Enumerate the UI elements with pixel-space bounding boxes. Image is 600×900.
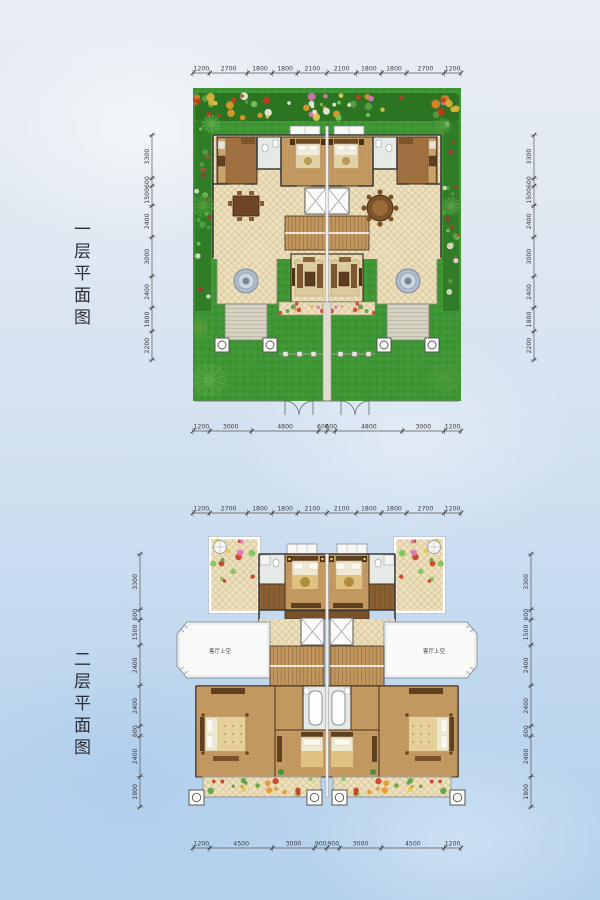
svg-text:3000: 3000	[286, 840, 302, 847]
svg-text:2400: 2400	[132, 698, 139, 714]
bedroom	[281, 137, 327, 186]
svg-text:2100: 2100	[334, 505, 350, 512]
tree	[193, 363, 226, 397]
dim-floor1-left: 3300600150024003000240018002200	[144, 133, 155, 362]
bay-balcony	[290, 126, 320, 135]
svg-text:1500: 1500	[526, 188, 533, 204]
staircase	[285, 216, 327, 250]
svg-text:1200: 1200	[445, 505, 461, 512]
svg-text:2100: 2100	[304, 65, 320, 72]
dim-floor2-left: 330060015002400240060024001800	[132, 552, 143, 809]
svg-text:3300: 3300	[523, 574, 530, 590]
svg-text:2700: 2700	[418, 65, 434, 72]
svg-text:600: 600	[526, 176, 533, 188]
svg-text:2700: 2700	[221, 65, 237, 72]
bedroom-upper	[285, 554, 327, 610]
svg-text:2400: 2400	[144, 213, 151, 229]
porch	[217, 258, 277, 304]
svg-text:1200: 1200	[194, 65, 210, 72]
svg-text:4800: 4800	[361, 423, 377, 430]
svg-text:3000: 3000	[144, 249, 151, 265]
center-path	[323, 302, 331, 401]
svg-text:4500: 4500	[233, 840, 249, 847]
column-base	[263, 338, 277, 352]
walkin-hall	[275, 686, 303, 730]
bay-window	[287, 544, 317, 554]
svg-text:1200: 1200	[445, 423, 461, 430]
party-wall	[326, 126, 329, 302]
svg-text:1200: 1200	[194, 505, 210, 512]
bathroom	[257, 137, 281, 169]
svg-text:1200: 1200	[194, 840, 210, 847]
svg-text:1500: 1500	[132, 624, 139, 640]
svg-text:2400: 2400	[144, 284, 151, 300]
svg-text:1200: 1200	[445, 840, 461, 847]
dim-floor2-top: 1200270018001800210021001800180027001200	[191, 505, 463, 516]
svg-text:1200: 1200	[194, 423, 210, 430]
svg-text:2400: 2400	[526, 213, 533, 229]
bedroom-lower	[275, 730, 327, 777]
svg-text:600: 600	[144, 176, 151, 188]
dim-floor2-right: 330060015002400240060024001800	[523, 552, 534, 809]
bathroom-lower	[303, 686, 327, 730]
balcony	[189, 777, 321, 797]
svg-text:2100: 2100	[304, 505, 320, 512]
dim-floor1-bottom: 120030004800600600480030001200	[191, 423, 463, 434]
floor2-title: 二层平面图	[68, 650, 93, 760]
svg-text:3000: 3000	[415, 423, 431, 430]
floor2-plan: 客厅上空 客厅上空	[163, 530, 491, 822]
entry-steps	[225, 304, 267, 340]
garden-strip-right	[442, 121, 460, 311]
tree	[430, 363, 460, 393]
svg-text:2100: 2100	[334, 65, 350, 72]
floorplan-sheet: { "page": { "width": 600, "height": 900,…	[0, 0, 600, 900]
svg-text:600: 600	[132, 725, 139, 737]
party-wall	[326, 554, 329, 797]
svg-text:2700: 2700	[418, 505, 434, 512]
tree	[435, 118, 451, 134]
svg-text:3000: 3000	[526, 249, 533, 265]
svg-text:1800: 1800	[361, 65, 377, 72]
floor1-title: 一层平面图	[68, 220, 93, 330]
column-base	[215, 338, 229, 352]
svg-text:900: 900	[315, 840, 327, 847]
svg-text:600: 600	[523, 609, 530, 621]
svg-text:2400: 2400	[526, 284, 533, 300]
svg-text:2400: 2400	[523, 657, 530, 673]
svg-text:2400: 2400	[523, 698, 530, 714]
svg-text:600: 600	[317, 423, 329, 430]
column-base	[307, 790, 322, 805]
svg-text:1800: 1800	[252, 505, 268, 512]
master-bedroom	[196, 686, 275, 777]
tree	[202, 115, 220, 133]
svg-text:1500: 1500	[144, 188, 151, 204]
svg-text:1500: 1500	[523, 624, 530, 640]
svg-text:2400: 2400	[523, 748, 530, 764]
svg-text:3300: 3300	[526, 149, 533, 165]
floor1-plan	[193, 88, 461, 418]
svg-text:1800: 1800	[361, 505, 377, 512]
staircase	[270, 646, 324, 686]
svg-text:900: 900	[327, 840, 339, 847]
svg-text:2400: 2400	[132, 657, 139, 673]
dim-floor2-bottom: 120045003000900900300045001200	[191, 840, 463, 851]
roof-terrace	[209, 537, 261, 614]
svg-text:1800: 1800	[132, 784, 139, 800]
svg-text:600: 600	[325, 423, 337, 430]
svg-text:3300: 3300	[132, 574, 139, 590]
svg-text:1800: 1800	[144, 312, 151, 328]
void-label-right: 客厅上空	[423, 647, 446, 655]
svg-text:3300: 3300	[144, 149, 151, 165]
svg-text:1800: 1800	[386, 505, 402, 512]
svg-text:3000: 3000	[223, 423, 239, 430]
void-label-left: 客厅上空	[209, 647, 232, 655]
svg-text:2200: 2200	[526, 338, 533, 354]
svg-text:4800: 4800	[277, 423, 293, 430]
column-base	[189, 790, 204, 805]
svg-text:600: 600	[523, 725, 530, 737]
dim-floor1-right: 3300600150024003000240018002200	[526, 133, 537, 362]
svg-text:1200: 1200	[445, 65, 461, 72]
svg-text:4500: 4500	[405, 840, 421, 847]
dim-floor1-top: 1200270018001800210021001800180027001200	[191, 65, 463, 76]
kitchen	[217, 137, 257, 184]
bathroom-upper	[259, 554, 285, 584]
svg-text:1800: 1800	[252, 65, 268, 72]
svg-text:3000: 3000	[353, 840, 369, 847]
floor2-right-unit	[327, 537, 477, 806]
svg-text:1800: 1800	[386, 65, 402, 72]
tree	[193, 195, 214, 217]
elevator	[301, 618, 324, 645]
svg-text:600: 600	[132, 609, 139, 621]
svg-text:1800: 1800	[526, 312, 533, 328]
svg-text:2400: 2400	[132, 748, 139, 764]
svg-text:2200: 2200	[144, 338, 151, 354]
flower-bed	[278, 302, 325, 315]
svg-text:1800: 1800	[277, 505, 293, 512]
garden-band-top	[195, 92, 459, 121]
closet	[259, 584, 285, 610]
entry-gates	[285, 401, 369, 415]
svg-text:2700: 2700	[221, 505, 237, 512]
tree	[442, 197, 460, 215]
svg-text:1800: 1800	[277, 65, 293, 72]
floor2-left-unit	[177, 537, 327, 806]
elevator	[305, 188, 326, 214]
svg-text:1800: 1800	[523, 784, 530, 800]
living-room	[291, 254, 327, 302]
